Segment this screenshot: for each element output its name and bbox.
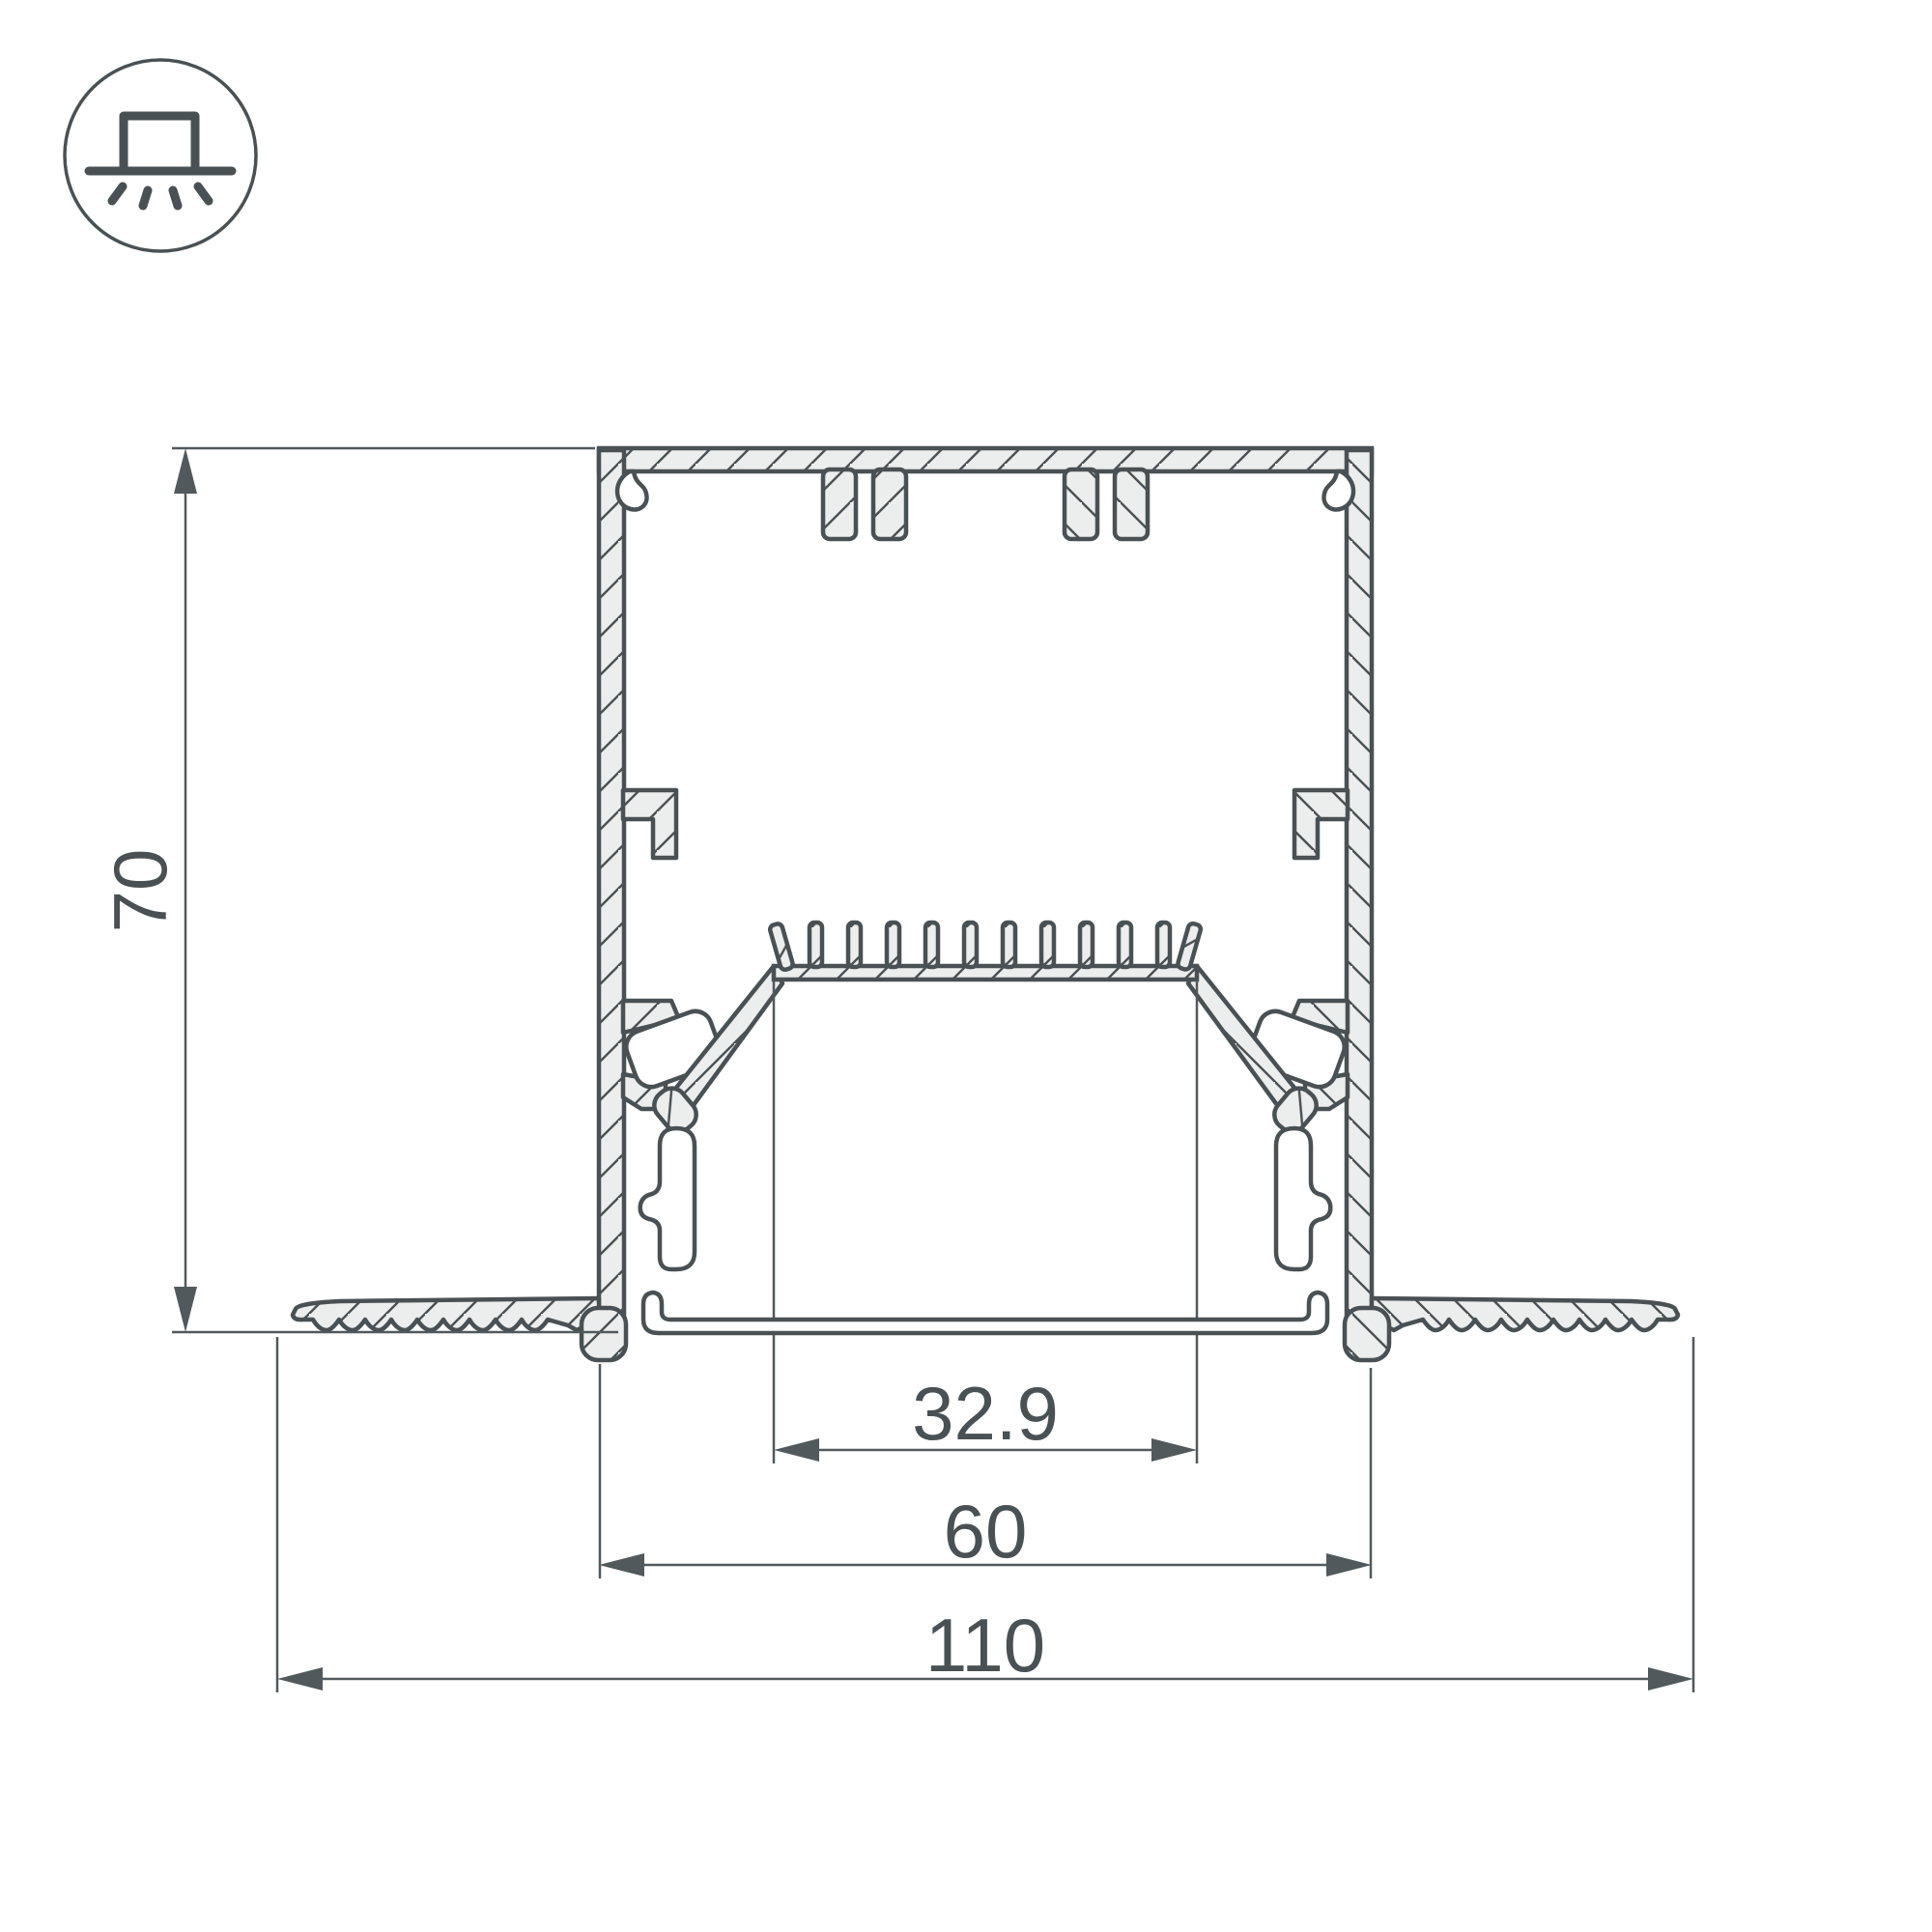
- diffuser-cover: [643, 1293, 1327, 1333]
- arrowhead-left: [277, 1667, 323, 1690]
- arrowhead-down: [174, 1287, 197, 1332]
- heatsink: [769, 923, 1202, 980]
- profile-left-half: [293, 450, 906, 1360]
- arrowhead-right: [1151, 1438, 1197, 1462]
- profile-top-wall: [599, 448, 1372, 471]
- arrowhead-right: [1326, 1553, 1372, 1577]
- profile-shell: [293, 448, 1678, 1463]
- heatsink-plate: [774, 966, 1197, 980]
- label-overall-width: 110: [925, 1603, 1045, 1688]
- profile-cross-section-drawing: 70 32.9 60 110: [0, 0, 1932, 1932]
- arrowhead-right: [1648, 1667, 1693, 1690]
- heatsink-fins: [769, 923, 1202, 971]
- recessed-light-icon: [65, 60, 256, 251]
- arrowhead-left: [774, 1438, 819, 1462]
- label-opening-width: 32.9: [912, 1371, 1059, 1456]
- label-height: 70: [98, 849, 183, 933]
- icon-circle: [65, 60, 256, 251]
- drawing-page: 70 32.9 60 110: [0, 0, 1932, 1932]
- label-body-width: 60: [944, 1489, 1028, 1574]
- icon-light-rays: [112, 186, 209, 206]
- icon-fixture-square: [124, 116, 195, 171]
- arrowhead-left: [599, 1553, 644, 1577]
- arrowhead-up: [174, 448, 197, 494]
- profile-right-half-mirrored: [1065, 450, 1678, 1360]
- dimension-height-70: [172, 448, 618, 1332]
